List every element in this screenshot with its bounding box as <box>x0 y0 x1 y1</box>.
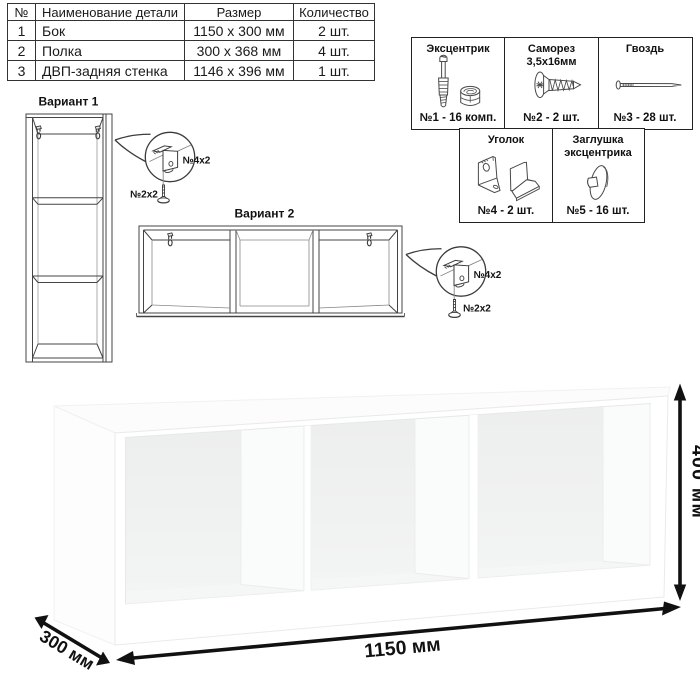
svg-text:№4х2: №4х2 <box>183 156 211 167</box>
svg-text:№4х2: №4х2 <box>474 270 502 281</box>
svg-text:№2х2: №2х2 <box>463 304 491 315</box>
svg-text:Вариант 1: Вариант 1 <box>39 95 99 109</box>
svg-text:1150 мм: 1150 мм <box>363 634 441 663</box>
svg-text:400 мм: 400 мм <box>688 445 700 519</box>
svg-text:Вариант 2: Вариант 2 <box>235 207 295 221</box>
svg-text:№2х2: №2х2 <box>130 190 158 201</box>
